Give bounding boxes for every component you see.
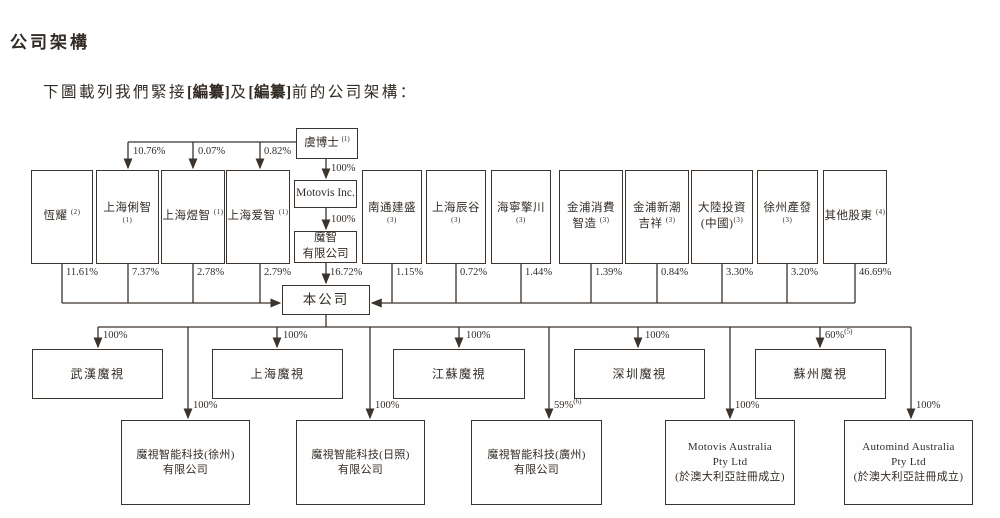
node-other-shareholders: 其他股東 (4) xyxy=(823,170,887,264)
node-company: 本公司 xyxy=(282,285,370,315)
node-shanghai-motovis: 上海魔視 xyxy=(212,349,343,399)
node-xuzhou-chanfa: 徐州產發 (3) xyxy=(757,170,818,264)
node-jiangsu-motovis: 江蘇魔視 xyxy=(393,349,525,399)
pct-motovis-au: 100% xyxy=(735,400,760,411)
node-jinpu-xinchao: 金浦新潮吉祥 (3) xyxy=(625,170,689,264)
node-mozhi: 魔智有限公司 xyxy=(294,231,357,263)
pct-jinpu-xiaofei: 1.39% xyxy=(595,267,622,278)
pct-xuzhou-co: 100% xyxy=(193,400,218,411)
pct-other: 46.69% xyxy=(859,267,891,278)
node-founder: 虞博士 (1) xyxy=(296,128,358,159)
pct-xuzhou-chanfa: 3.20% xyxy=(791,267,818,278)
node-xuzhou-co: 魔視智能科技(徐州)有限公司 xyxy=(121,420,250,505)
pct-aizhi: 2.79% xyxy=(264,267,291,278)
pct-mozhi: 16.72% xyxy=(330,267,362,278)
org-chart-page: 公司架構 下圖載列我們緊接[編纂]及[編纂]前的公司架構： xyxy=(0,0,1000,518)
pct-suzhou: 60%(5) xyxy=(825,330,852,341)
node-shanghai-yuzhi: 上海煜智 (1) xyxy=(161,170,225,264)
node-shanghai-chengu: 上海辰谷 (3) xyxy=(426,170,486,264)
pct-hengyao: 11.61% xyxy=(66,267,98,278)
pct-shanghai: 100% xyxy=(283,330,308,341)
pct-guangzhou-co: 59%(6) xyxy=(554,400,581,411)
node-rizhao-co: 魔視智能科技(日照)有限公司 xyxy=(296,420,425,505)
pct-dalu: 3.30% xyxy=(726,267,753,278)
node-shanghai-aizhi: 上海爱智 (1) xyxy=(226,170,290,264)
node-guangzhou-co: 魔視智能科技(廣州)有限公司 xyxy=(471,420,602,505)
node-shanghai-lizhi: 上海俐智 (1) xyxy=(96,170,159,264)
pct-rizhao-co: 100% xyxy=(375,400,400,411)
pct-shenzhen: 100% xyxy=(645,330,670,341)
node-haining-qingchuan: 海寧擎川 (3) xyxy=(491,170,551,264)
pct-automind-au: 100% xyxy=(916,400,941,411)
node-nantong-jiansheng: 南通建盛 (3) xyxy=(362,170,422,264)
pct-nantong: 1.15% xyxy=(396,267,423,278)
pct-jiangsu: 100% xyxy=(466,330,491,341)
pct-founder-to-yuzhi: 0.07% xyxy=(198,146,225,157)
pct-founder-to-aizhi: 0.82% xyxy=(264,146,291,157)
pct-qingchuan: 1.44% xyxy=(525,267,552,278)
pct-yuzhi: 2.78% xyxy=(197,267,224,278)
node-shenzhen-motovis: 深圳魔視 xyxy=(574,349,705,399)
node-jinpu-xiaofei: 金浦消費智造 (3) xyxy=(559,170,623,264)
pct-founder-to-lizhi: 10.76% xyxy=(133,146,165,157)
pct-wuhan: 100% xyxy=(103,330,128,341)
node-motovis-australia: Motovis AustraliaPty Ltd(於澳大利亞註冊成立) xyxy=(665,420,795,505)
pct-founder-to-motovis: 100% xyxy=(331,163,356,174)
node-wuhan-motovis: 武漢魔視 xyxy=(32,349,163,399)
pct-motovis-to-mozhi: 100% xyxy=(331,214,356,225)
pct-lizhi: 7.37% xyxy=(132,267,159,278)
pct-chengu: 0.72% xyxy=(460,267,487,278)
node-suzhou-motovis: 蘇州魔視 xyxy=(755,349,886,399)
node-dalu-touzi: 大陸投資(中國)(3) xyxy=(691,170,753,264)
node-hengyao: 恆耀 (2) xyxy=(31,170,93,264)
pct-jinpu-xinchao: 0.84% xyxy=(661,267,688,278)
node-motovis-inc: Motovis Inc. xyxy=(294,180,357,208)
node-automind-australia: Automind AustraliaPty Ltd(於澳大利亞註冊成立) xyxy=(844,420,973,505)
